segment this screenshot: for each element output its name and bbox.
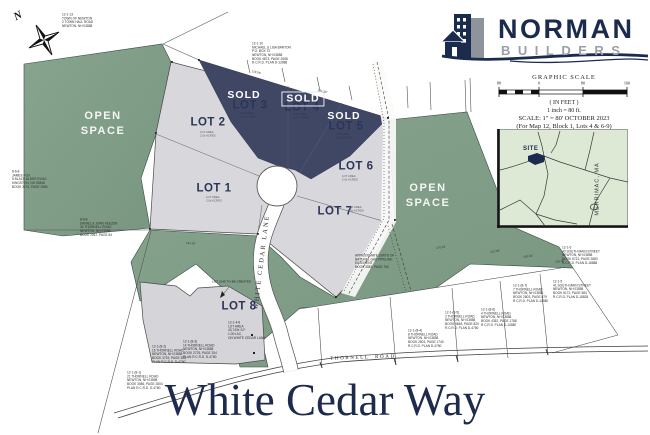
- scale-line: SCALE: 1" = 80' OCTOBER 2023: [494, 115, 634, 123]
- locus-map-drawing: [497, 129, 628, 228]
- scale-bar-icon: [497, 86, 631, 104]
- cul-de-sac: [257, 166, 297, 206]
- gray-tower-icon: [470, 18, 484, 58]
- locus-inset-map: SITE MERRIMAC, MA: [497, 129, 628, 228]
- scale-bar: 80080160: [494, 82, 634, 100]
- graphic-scale-heading: GRAPHIC SCALE: [494, 74, 634, 81]
- north-arrow: N: [12, 8, 68, 64]
- scale-tick-label: 160: [624, 82, 630, 86]
- brand-primary: NORMAN: [498, 14, 635, 45]
- brand-secondary: BUILDERS: [501, 43, 627, 58]
- scale-tick-label: 80: [581, 82, 585, 86]
- site-label: SITE: [523, 146, 538, 152]
- graphic-scale-block: GRAPHIC SCALE 80080160 ( IN FEET ) 1 inc…: [494, 74, 634, 132]
- page-title: White Cedar Way: [0, 374, 650, 426]
- scale-tick-label: 80: [497, 82, 501, 86]
- scale-inch-note: 1 inch = 80 ft.: [494, 108, 634, 116]
- scale-tick-label: 0: [538, 82, 540, 86]
- norman-builders-logo: NORMAN BUILDERS: [440, 6, 650, 66]
- plat-flyer: N NORMAN BUILDERS GRAPHIC SCALE: [0, 0, 650, 435]
- region-label: MERRIMAC, MA: [594, 162, 600, 215]
- swoosh-thin-icon: [510, 59, 648, 62]
